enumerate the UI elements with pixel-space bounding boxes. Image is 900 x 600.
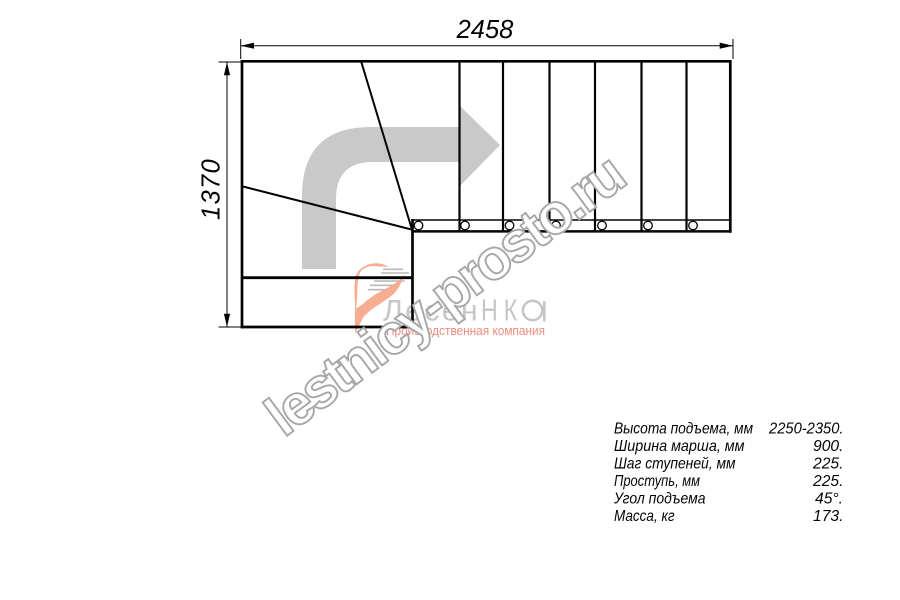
svg-text:Шаг ступеней, мм: Шаг ступеней, мм bbox=[614, 456, 736, 473]
svg-text:Угол подъема: Угол подъема bbox=[613, 491, 705, 508]
svg-text:1370: 1370 bbox=[198, 158, 226, 220]
svg-text:2250-2350.: 2250-2350. bbox=[768, 421, 843, 438]
svg-text:225.: 225. bbox=[812, 473, 843, 490]
svg-text:225.: 225. bbox=[812, 456, 843, 473]
svg-text:2458: 2458 bbox=[456, 16, 515, 44]
svg-text:173.: 173. bbox=[813, 508, 844, 525]
svg-text:Масса, кг: Масса, кг bbox=[614, 508, 675, 525]
svg-text:45°.: 45°. bbox=[815, 491, 843, 508]
svg-text:Высота подъема, мм: Высота подъема, мм bbox=[614, 421, 753, 438]
svg-text:Проступь, мм: Проступь, мм bbox=[614, 473, 700, 490]
svg-text:Ширина марша, мм: Ширина марша, мм bbox=[614, 438, 745, 455]
svg-text:900.: 900. bbox=[813, 438, 844, 455]
